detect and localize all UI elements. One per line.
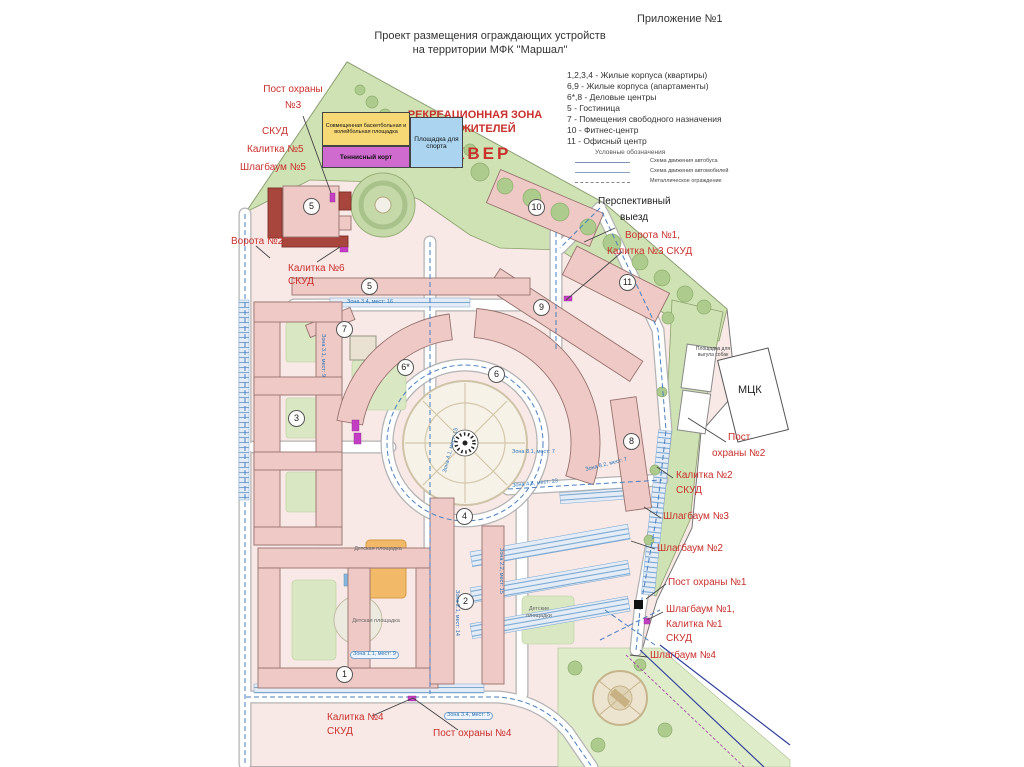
zone-label-2-2: Зона 2.2, мест: 15 bbox=[498, 548, 504, 594]
label-gate-6: Калитка №6 bbox=[288, 263, 345, 275]
building-number-5-row: 5 bbox=[361, 278, 378, 295]
annex-label: Приложение №1 bbox=[637, 13, 723, 25]
building-number-9: 9 bbox=[533, 299, 550, 316]
central-plaza bbox=[403, 381, 527, 505]
key-item-office: 11 - Офисный центр bbox=[567, 136, 647, 146]
building-number-7: 7 bbox=[336, 321, 353, 338]
round-garden bbox=[351, 173, 415, 237]
label-playground-upper: Детская площадка bbox=[352, 546, 404, 553]
zone-label-2-1: Зона 2.1, мест: 14 bbox=[454, 590, 460, 636]
building-number-4: 4 bbox=[456, 508, 473, 525]
label-playgrounds: Детские площадки bbox=[518, 606, 560, 619]
label-barrier-2: Шлагбаум №2 bbox=[657, 543, 723, 555]
label-guard-post-4: Пост охраны №4 bbox=[433, 728, 511, 740]
label-barrier-5: Шлагбаум №5 bbox=[240, 162, 306, 174]
label-gate-1-skud: СКУД bbox=[666, 633, 692, 645]
label-gate-1: Калитка №1 bbox=[666, 619, 723, 631]
label-barrier-4: Шлагбаум №4 bbox=[650, 650, 716, 662]
building-number-6: 6 bbox=[488, 366, 505, 383]
label-barrier-3: Шлагбаум №3 bbox=[663, 511, 729, 523]
building-number-1: 1 bbox=[336, 666, 353, 683]
sport-ground: Площадка для спорта bbox=[410, 117, 463, 168]
label-gate-6-skud: СКУД bbox=[288, 276, 314, 288]
symbols-title: Условные обозначения bbox=[595, 149, 665, 157]
building-number-3: 3 bbox=[288, 410, 305, 427]
label-gate-4-skud: СКУД bbox=[327, 726, 353, 738]
label-playground-lower: Детская площадка bbox=[346, 618, 406, 625]
label-perspective-exit-line2: выезд bbox=[620, 212, 648, 224]
zone-label-8-1: Зона 8.1, мест: 7 bbox=[512, 450, 555, 456]
label-guard-post-2-line1: Пост bbox=[728, 432, 750, 444]
page-title-line2: на территории МФК "Маршал" bbox=[330, 44, 650, 56]
label-vorota-2: Ворота №2 bbox=[231, 236, 283, 248]
label-guard-post-2-line2: охраны №2 bbox=[712, 448, 765, 460]
building-4 bbox=[430, 498, 454, 684]
key-item-fitness: 10 - Фитнес-центр bbox=[567, 125, 638, 135]
key-item-residential-flats: 1,2,3,4 - Жилые корпуса (квартиры) bbox=[567, 70, 707, 80]
label-dog-walk-area: Площадка для выгула собак bbox=[688, 346, 738, 358]
key-item-free-purpose: 7 - Помещения свободного назначения bbox=[567, 114, 722, 124]
key-item-residential-apartments: 6,9 - Жилые корпуса (апартаменты) bbox=[567, 81, 709, 91]
label-gate-4: Калитка №4 bbox=[327, 712, 384, 724]
building-number-5-hotel: 5 bbox=[303, 198, 320, 215]
key-item-hotel: 5 - Гостиница bbox=[567, 103, 620, 113]
symbol-line-bus bbox=[575, 162, 630, 163]
label-vorota-1: Ворота №1, bbox=[625, 230, 680, 242]
building-number-8: 8 bbox=[623, 433, 640, 450]
building-number-11: 11 bbox=[619, 274, 636, 291]
symbol-label-cars: Схема движения автомобилей bbox=[650, 168, 728, 174]
symbol-label-bus: Схема движения автобуса bbox=[650, 158, 718, 164]
symbol-label-fence: Металлическое ограждение bbox=[650, 178, 722, 184]
label-guard-post-3-line2: №3 bbox=[253, 100, 333, 112]
zone-label-3-1: Зона 3.1, мест: 9 bbox=[320, 334, 326, 377]
guard-post-1-marker bbox=[634, 600, 643, 609]
basketball-volleyball-court: Совмещенная баскетбольная и волейбольная… bbox=[322, 112, 410, 146]
symbol-line-cars bbox=[575, 172, 630, 173]
zone-label-3-4-small: Зона 3.4, мест: 5 bbox=[444, 712, 493, 720]
label-barrier-1: Шлагбаум №1, bbox=[666, 604, 735, 616]
zone-label-3-4: Зона 3.4, мест: 16 bbox=[347, 300, 393, 306]
building-row bbox=[292, 278, 530, 295]
symbol-line-fence bbox=[575, 182, 630, 183]
label-perspective-exit-line1: Перспективный bbox=[598, 196, 671, 208]
key-item-business-centers: 6*,8 - Деловые центры bbox=[567, 92, 656, 102]
label-gate-2-skud: СКУД bbox=[676, 485, 702, 497]
label-gate-3-skud: Калитка №3 СКУД bbox=[607, 246, 692, 258]
label-skud-5: СКУД bbox=[262, 126, 288, 138]
label-mck: МЦК bbox=[738, 384, 762, 397]
zone-label-1-1: Зона 1.1, мест: 9 bbox=[350, 651, 399, 659]
label-guard-post-3-line1: Пост охраны bbox=[253, 84, 333, 96]
building-number-6-star: 6* bbox=[397, 359, 414, 376]
tennis-court: Теннисный корт bbox=[322, 146, 410, 168]
page-title-line1: Проект размещения ограждающих устройств bbox=[330, 30, 650, 42]
building-number-10: 10 bbox=[528, 199, 545, 216]
site-plan-page: Приложение №1 Проект размещения ограждаю… bbox=[0, 0, 1024, 767]
label-gate-2: Калитка №2 bbox=[676, 470, 733, 482]
label-gate-5: Калитка №5 bbox=[247, 144, 304, 156]
label-guard-post-1: Пост охраны №1 bbox=[668, 577, 746, 589]
